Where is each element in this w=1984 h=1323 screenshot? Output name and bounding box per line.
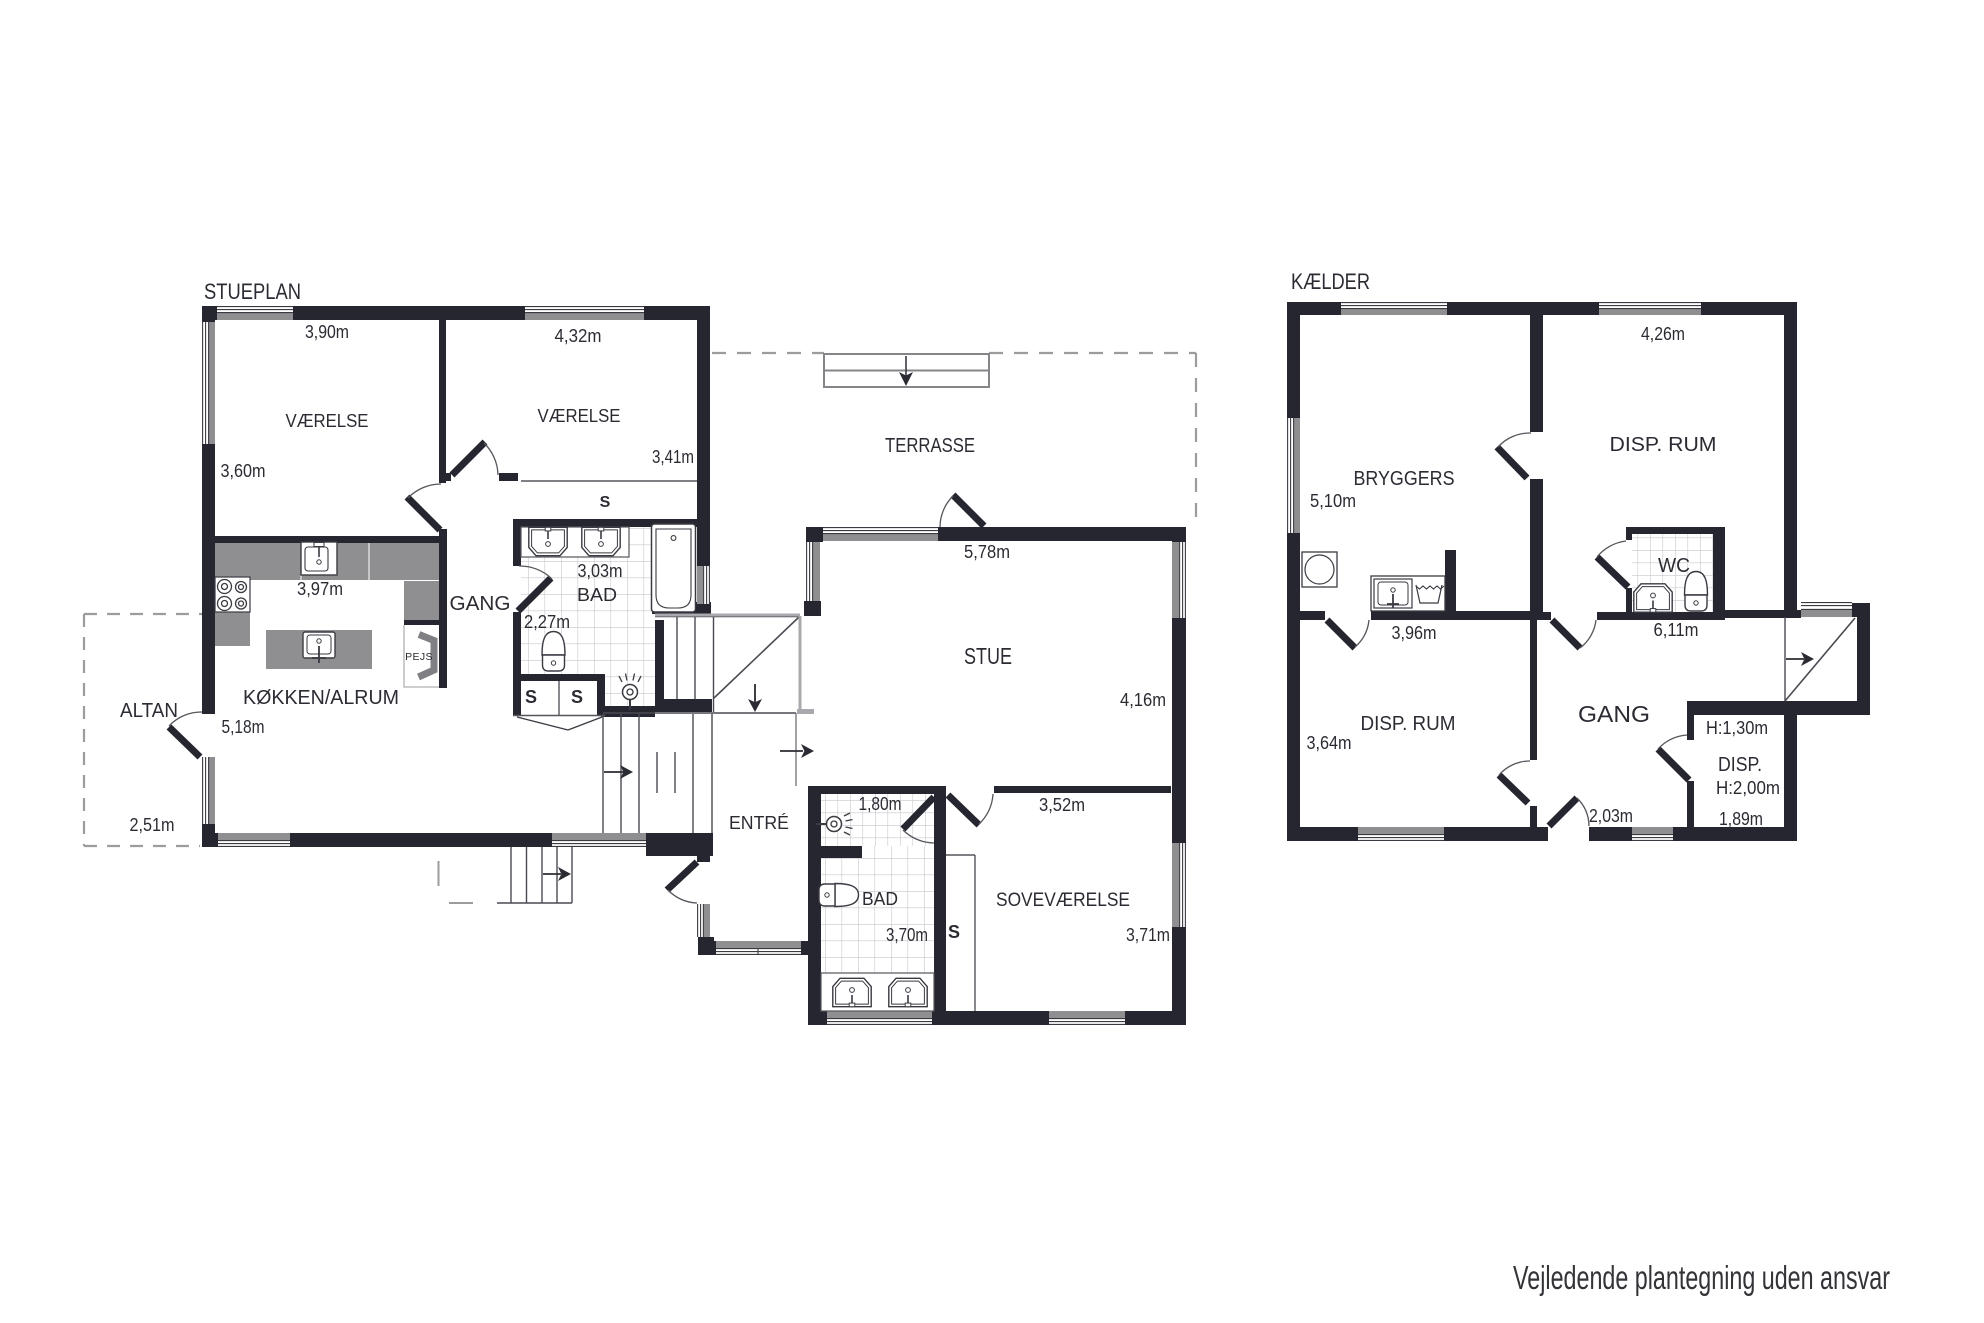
svg-text:STUE: STUE [964,643,1012,669]
svg-text:5,78m: 5,78m [964,542,1010,562]
svg-text:STUEPLAN: STUEPLAN [204,279,301,304]
svg-text:3,03m: 3,03m [578,561,623,581]
svg-text:3,64m: 3,64m [1307,733,1352,753]
svg-text:TERRASSE: TERRASSE [885,435,975,457]
svg-text:PEJS: PEJS [405,651,433,663]
svg-text:BRYGGERS: BRYGGERS [1354,468,1455,490]
svg-text:Vejledende plantegning uden an: Vejledende plantegning uden ansvar [1513,1259,1890,1296]
svg-text:3,60m: 3,60m [221,461,266,481]
svg-text:4,32m: 4,32m [555,326,602,346]
svg-text:6,11m: 6,11m [1654,620,1699,640]
svg-text:1,89m: 1,89m [1719,809,1763,829]
svg-text:ENTRÉ: ENTRÉ [729,813,789,833]
svg-text:3,97m: 3,97m [297,579,343,599]
svg-text:VÆRELSE: VÆRELSE [538,405,621,426]
svg-text:3,52m: 3,52m [1039,795,1085,815]
svg-text:WC: WC [1658,555,1690,577]
svg-text:VÆRELSE: VÆRELSE [286,410,369,431]
svg-text:H:1,30m: H:1,30m [1706,718,1768,738]
svg-text:2,51m: 2,51m [130,815,175,835]
svg-text:SOVEVÆRELSE: SOVEVÆRELSE [996,889,1130,911]
svg-text:S: S [571,687,583,707]
svg-text:DISP. RUM: DISP. RUM [1361,713,1456,735]
svg-text:3,90m: 3,90m [305,322,349,342]
svg-text:DISP.: DISP. [1718,754,1762,776]
svg-text:H:2,00m: H:2,00m [1716,778,1780,798]
svg-text:2,03m: 2,03m [1589,806,1633,826]
svg-text:KÆLDER: KÆLDER [1291,269,1370,294]
svg-text:2,27m: 2,27m [524,612,570,632]
svg-text:S: S [948,922,960,942]
svg-text:3,41m: 3,41m [652,447,694,467]
svg-text:4,16m: 4,16m [1120,690,1166,710]
svg-text:4,26m: 4,26m [1641,324,1685,344]
svg-text:S: S [525,687,537,707]
svg-text:GANG: GANG [450,593,511,615]
svg-text:BAD: BAD [862,888,898,909]
svg-text:ALTAN: ALTAN [120,700,178,722]
svg-text:BAD: BAD [577,584,617,605]
svg-text:5,10m: 5,10m [1310,491,1356,511]
svg-text:5,18m: 5,18m [222,717,265,737]
svg-text:S: S [600,494,611,511]
svg-text:DISP. RUM: DISP. RUM [1610,434,1717,456]
svg-text:GANG: GANG [1578,701,1650,727]
svg-text:1,80m: 1,80m [859,794,902,814]
svg-text:3,71m: 3,71m [1126,925,1170,945]
svg-text:KØKKEN/ALRUM: KØKKEN/ALRUM [243,687,399,709]
svg-text:3,70m: 3,70m [886,925,928,945]
svg-text:3,96m: 3,96m [1392,623,1437,643]
